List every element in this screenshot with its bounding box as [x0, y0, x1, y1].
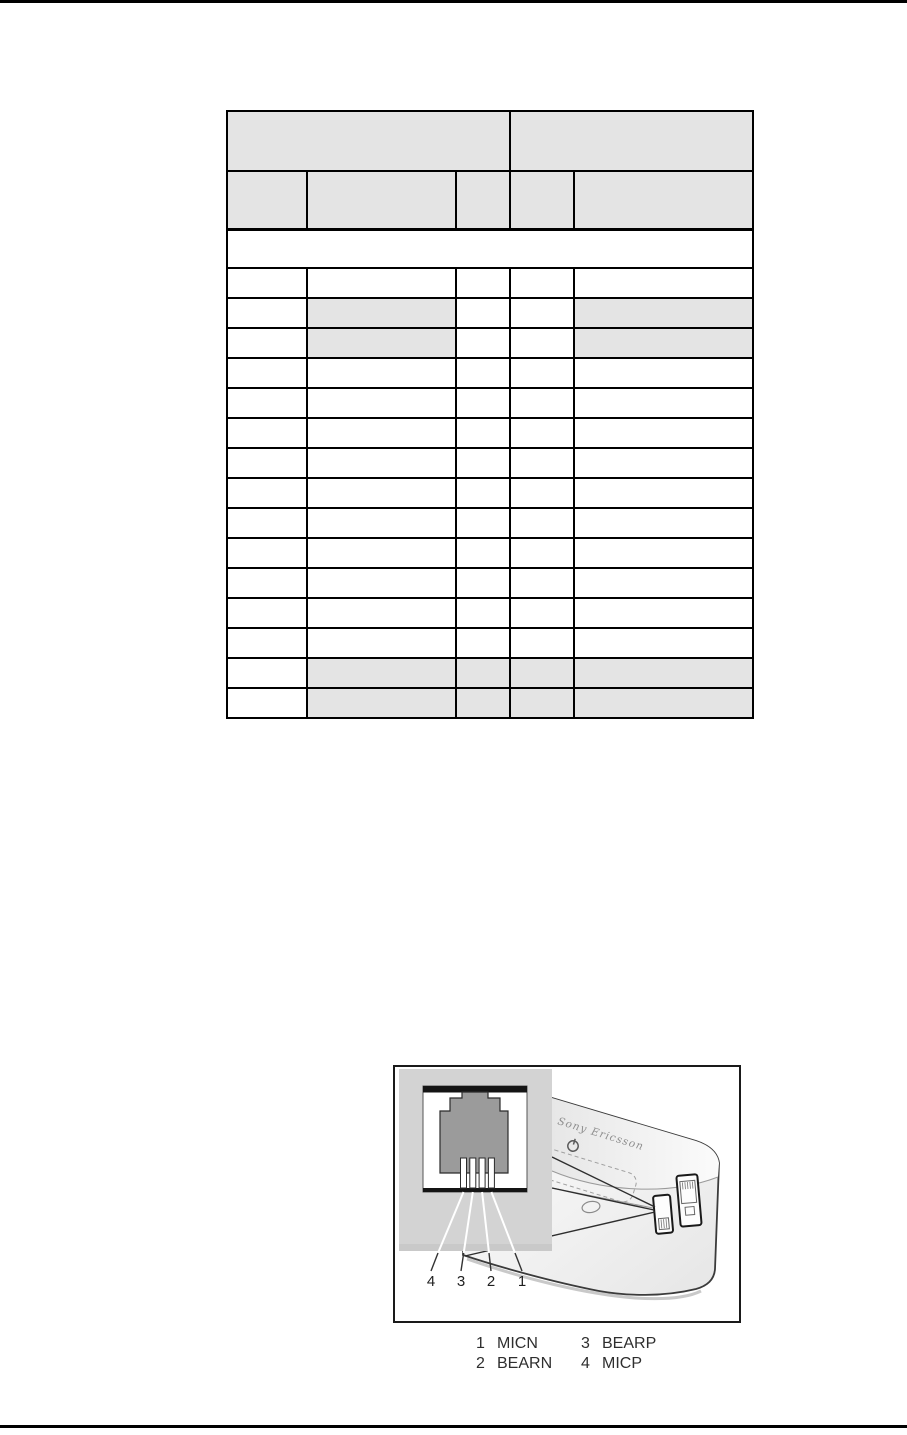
table-cell [456, 508, 510, 538]
caption-pin-entry: 2BEARN [476, 1354, 581, 1374]
table-cell [574, 598, 753, 628]
device-illustration: Sony Ericsson [395, 1067, 739, 1321]
table-cell [307, 508, 456, 538]
table-row [227, 448, 753, 478]
table-cell [456, 268, 510, 298]
pin-number-label: 1 [518, 1273, 526, 1290]
table-cell [227, 298, 307, 328]
table-cell [307, 298, 456, 328]
table-row [227, 268, 753, 298]
table-cell [307, 628, 456, 658]
table-cell [227, 268, 307, 298]
table-cell [510, 418, 574, 448]
table-row [227, 538, 753, 568]
table-cell [227, 658, 307, 688]
table-cell [574, 388, 753, 418]
table-cell [510, 658, 574, 688]
table-cell [307, 688, 456, 718]
figure-caption: 1MICN 3BEARP 2BEARN 4MICP [476, 1334, 656, 1374]
table-cell [456, 688, 510, 718]
table-cell [510, 448, 574, 478]
table-cell [510, 538, 574, 568]
caption-pin-entry: 4MICP [581, 1354, 656, 1374]
table-cell [307, 538, 456, 568]
caption-pin-entry: 3BEARP [581, 1334, 656, 1354]
table-cell [307, 418, 456, 448]
manual-page: Sony Ericsson [0, 0, 907, 1435]
caption-pin-number: 4 [581, 1354, 593, 1374]
table-cell [456, 478, 510, 508]
table-cell [574, 628, 753, 658]
table-cell [307, 388, 456, 418]
table-cell [227, 628, 307, 658]
table-cell [227, 448, 307, 478]
table-row [227, 388, 753, 418]
table-cell [574, 448, 753, 478]
table-cell [456, 388, 510, 418]
pin-assignment-table [226, 110, 754, 719]
table-cell [574, 298, 753, 328]
header-cell-2 [307, 171, 456, 229]
table-cell [510, 328, 574, 358]
table-row [227, 628, 753, 658]
header-cell-5 [574, 171, 753, 229]
section-band-row [227, 229, 753, 268]
table-cell [510, 478, 574, 508]
table-cell [307, 598, 456, 628]
table-cell [227, 508, 307, 538]
table-cell [574, 328, 753, 358]
page-bottom-rule [0, 1425, 907, 1428]
table-row [227, 298, 753, 328]
header-group-cell-1 [227, 111, 510, 171]
table-cell [574, 538, 753, 568]
caption-pin-number: 1 [476, 1334, 488, 1354]
table-cell [510, 598, 574, 628]
table-cell [307, 358, 456, 388]
table-cell [456, 628, 510, 658]
table-cell [456, 538, 510, 568]
caption-pin-number: 3 [581, 1334, 593, 1354]
table-row [227, 328, 753, 358]
table-cell [227, 568, 307, 598]
table-cell [574, 508, 753, 538]
table-cell [456, 298, 510, 328]
rj45-port-icon [676, 1174, 701, 1227]
pin-number-label: 3 [457, 1273, 465, 1290]
table-cell [227, 688, 307, 718]
pin-number-label: 2 [487, 1273, 495, 1290]
table-cell [510, 628, 574, 658]
table-row [227, 688, 753, 718]
table-cell [227, 478, 307, 508]
header-group-row [227, 111, 753, 171]
pin-number-label: 4 [427, 1273, 435, 1290]
caption-pin-entry: 1MICN [476, 1334, 581, 1354]
table-cell [456, 418, 510, 448]
page-top-rule [0, 0, 907, 3]
table-cell [227, 598, 307, 628]
device-figure-frame: Sony Ericsson [393, 1065, 741, 1323]
caption-pin-label: BEARN [497, 1355, 552, 1372]
table-cell [227, 328, 307, 358]
section-band-cell [227, 229, 753, 268]
header-cell-3 [456, 171, 510, 229]
table-cell [574, 568, 753, 598]
table-cell [227, 388, 307, 418]
caption-pin-label: MICN [497, 1335, 538, 1352]
table-cell [510, 568, 574, 598]
table-row [227, 418, 753, 448]
caption-pin-label: MICP [602, 1355, 642, 1372]
table-cell [456, 448, 510, 478]
table-cell [307, 658, 456, 688]
table-cell [456, 568, 510, 598]
table-cell [456, 328, 510, 358]
table-cell [510, 388, 574, 418]
header-cell-4 [510, 171, 574, 229]
table-cell [510, 688, 574, 718]
table-cell [510, 298, 574, 328]
table-cell [510, 268, 574, 298]
table-cell [227, 538, 307, 568]
table-cell [510, 358, 574, 388]
table-cell [574, 418, 753, 448]
table-row [227, 358, 753, 388]
caption-pin-label: BEARP [602, 1335, 656, 1352]
table-cell [510, 508, 574, 538]
header-group-cell-2 [510, 111, 753, 171]
table-cell [307, 568, 456, 598]
table-row [227, 598, 753, 628]
column-header-row [227, 171, 753, 229]
table-cell [227, 418, 307, 448]
table-cell [307, 328, 456, 358]
rj11-port-icon [653, 1195, 673, 1234]
table-row [227, 658, 753, 688]
caption-pin-number: 2 [476, 1354, 488, 1374]
table-cell [307, 448, 456, 478]
table-cell [574, 478, 753, 508]
table-cell [574, 658, 753, 688]
table-row [227, 478, 753, 508]
table-cell [574, 268, 753, 298]
table-cell [456, 598, 510, 628]
table-row [227, 508, 753, 538]
table-cell [227, 358, 307, 388]
header-cell-1 [227, 171, 307, 229]
table-cell [574, 688, 753, 718]
table-cell [456, 358, 510, 388]
table-cell [307, 268, 456, 298]
table-cell [307, 478, 456, 508]
connector-inset-panel [399, 1069, 552, 1251]
table-row [227, 568, 753, 598]
table-cell [456, 658, 510, 688]
table-cell [574, 358, 753, 388]
